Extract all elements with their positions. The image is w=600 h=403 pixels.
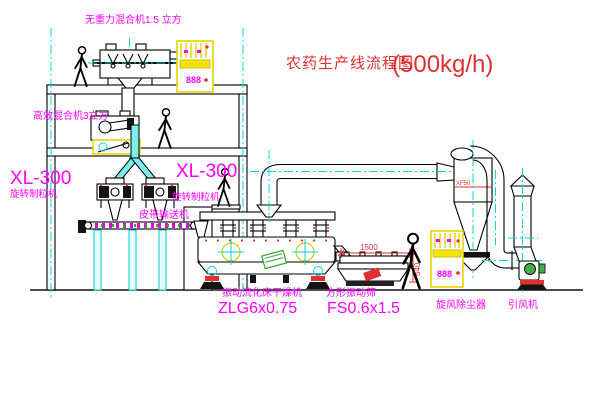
vibrating-sieve — [336, 252, 408, 286]
label-granulator1-name: 旋转制粒机 — [10, 188, 58, 200]
dim-1500-text: 1500 — [360, 243, 378, 252]
exhaust-duct — [250, 150, 468, 222]
cabinet1-display: 888 — [186, 75, 201, 85]
fluid-bed-dryer — [198, 212, 352, 289]
label-high-eff-mixer: 高效混合机3立方 — [33, 109, 109, 122]
label-granulator1-model: XL-300 — [10, 168, 71, 189]
cad-drawing-canvas: 888 — [0, 0, 600, 403]
cyclone-tag: XF50 — [456, 181, 471, 187]
label-cyclone: 旋风除尘器 — [436, 298, 486, 311]
label-fan: 引风机 — [508, 298, 538, 311]
y-split-chute — [106, 158, 164, 184]
control-cabinet-2: 888 — [431, 231, 463, 287]
label-granulator2-model: XL-300 — [176, 161, 237, 182]
drawing-title: 农药生产线流程图 (500kg/h) — [286, 51, 493, 78]
label-sieve-model: FS0.6x1.5 — [327, 300, 400, 317]
induced-draft-fan — [517, 261, 547, 290]
granulator-left — [97, 184, 133, 220]
person-figure-4 — [403, 234, 420, 288]
person-figure-1 — [75, 47, 87, 86]
title-capacity: (500kg/h) — [392, 51, 493, 78]
label-dryer: 振动流化床干燥机 — [222, 286, 302, 299]
label-gravity-mixer: 无重力混合机1.5 立方 — [85, 13, 182, 26]
label-dryer-model: ZLG6x0.75 — [218, 300, 297, 317]
cabinet2-display: 888 — [437, 269, 452, 279]
label-sieve: 方形振动筛 — [326, 286, 376, 299]
person-figure-2 — [159, 109, 171, 148]
process-flow-diagram: 888 — [0, 0, 600, 403]
label-belt-conveyor: 皮带输送机 — [139, 208, 189, 221]
label-granulator2-name: 旋转制粒机 — [172, 191, 220, 203]
control-cabinet-1: 888 — [177, 41, 213, 92]
